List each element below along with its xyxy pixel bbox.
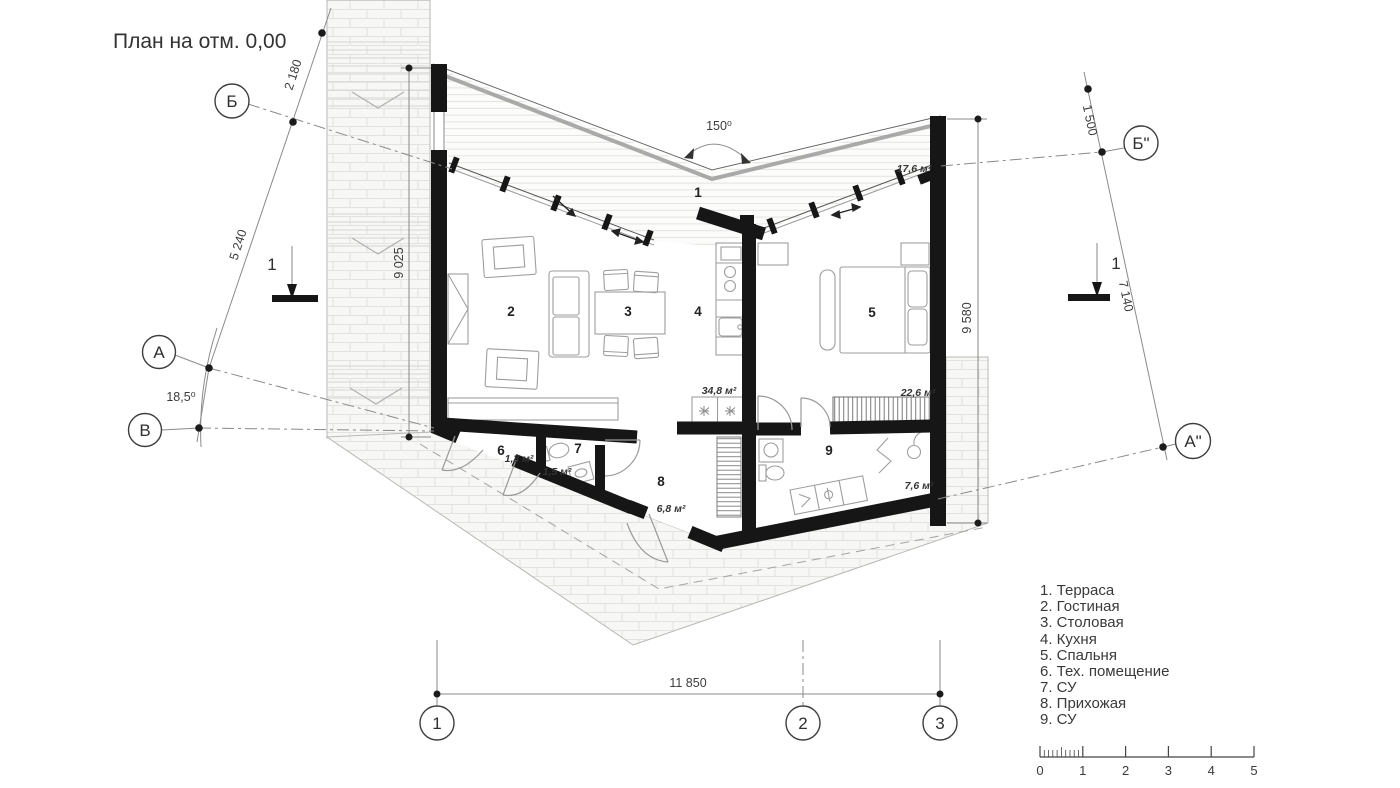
entry-grate [717, 437, 741, 517]
legend-item: 6. Тех. помещение [1040, 663, 1170, 680]
section-label: 1 [267, 255, 276, 274]
axis-label-v: В [139, 421, 150, 440]
angle-150 [684, 144, 751, 164]
legend-item: 8. Прихожая [1040, 695, 1126, 712]
room-area: 22,6 м² [900, 387, 936, 399]
legend-item: 7. СУ [1040, 679, 1077, 696]
room-number: 5 [868, 305, 876, 320]
angle-left-label: 18,5⁰ [166, 390, 195, 404]
room-number: 1 [694, 185, 702, 200]
legend-item: 2. Гостиная [1040, 598, 1120, 615]
room-number: 9 [825, 443, 833, 458]
drawing-title: План на отм. 0,00 [113, 30, 286, 53]
angle-arc [201, 328, 217, 447]
dim-1500: 1 500 [1080, 103, 1100, 137]
scale-bar-subticks [1044, 747, 1078, 757]
room-area: 1,5 м² [543, 466, 572, 478]
dim-7140: 7 140 [1116, 279, 1136, 313]
axis-label-a2: А" [1184, 432, 1201, 451]
legend-item: 4. Кухня [1040, 631, 1097, 648]
room-area: 6,8 м² [657, 503, 686, 515]
section-label: 1 [1111, 254, 1120, 273]
room-number: 8 [657, 474, 665, 489]
scale-label: 0 [1036, 763, 1043, 778]
scale-label: 1 [1079, 763, 1086, 778]
dim-11850: 11 850 [669, 676, 706, 690]
room-number: 4 [694, 304, 702, 319]
room-area: 1,3 м² [505, 453, 534, 465]
room-number: 7 [574, 441, 582, 456]
scale-label: 5 [1250, 763, 1257, 778]
dim-9580: 9 580 [960, 302, 974, 333]
wardrobe [833, 397, 931, 422]
room-area: 7,6 м² [905, 480, 934, 492]
section-mark-right: 1 [1068, 243, 1121, 301]
room-area: 17,6 м² [897, 163, 932, 175]
axis-label-1: 1 [432, 714, 441, 733]
scale-label: 3 [1165, 763, 1172, 778]
axis-label-2: 2 [798, 714, 807, 733]
room-area: 34,8 м² [702, 385, 737, 397]
axis-label-a: А [153, 343, 165, 362]
dim-2180: 2 180 [282, 58, 305, 92]
legend-item: 3. Столовая [1040, 614, 1124, 631]
scale-bar: 0 1 2 3 4 5 [1036, 746, 1257, 778]
room-number: 2 [507, 304, 515, 319]
scale-label: 4 [1208, 763, 1215, 778]
dim-9025: 9 025 [392, 247, 406, 278]
scale-label: 2 [1122, 763, 1129, 778]
axis-label-b: Б [226, 92, 237, 111]
legend-item: 9. СУ [1040, 711, 1077, 728]
legend-item: 5. Спальня [1040, 647, 1117, 664]
floor-plan-sheet: 2 180 5 240 9 025 1 500 7 140 9 580 11 8… [0, 0, 1400, 788]
angle-top-label: 150⁰ [706, 119, 732, 133]
legend-item: 1. Терраса [1040, 582, 1115, 599]
room-legend: 1. Терраса 2. Гостиная 3. Столовая 4. Ку… [1040, 582, 1170, 728]
floor-plan-drawing: 2 180 5 240 9 025 1 500 7 140 9 580 11 8… [0, 0, 1400, 788]
section-mark-left: 1 [267, 246, 318, 302]
room-number: 3 [624, 304, 632, 319]
axis-label-3: 3 [935, 714, 944, 733]
axis-label-b2: Б" [1132, 134, 1149, 153]
